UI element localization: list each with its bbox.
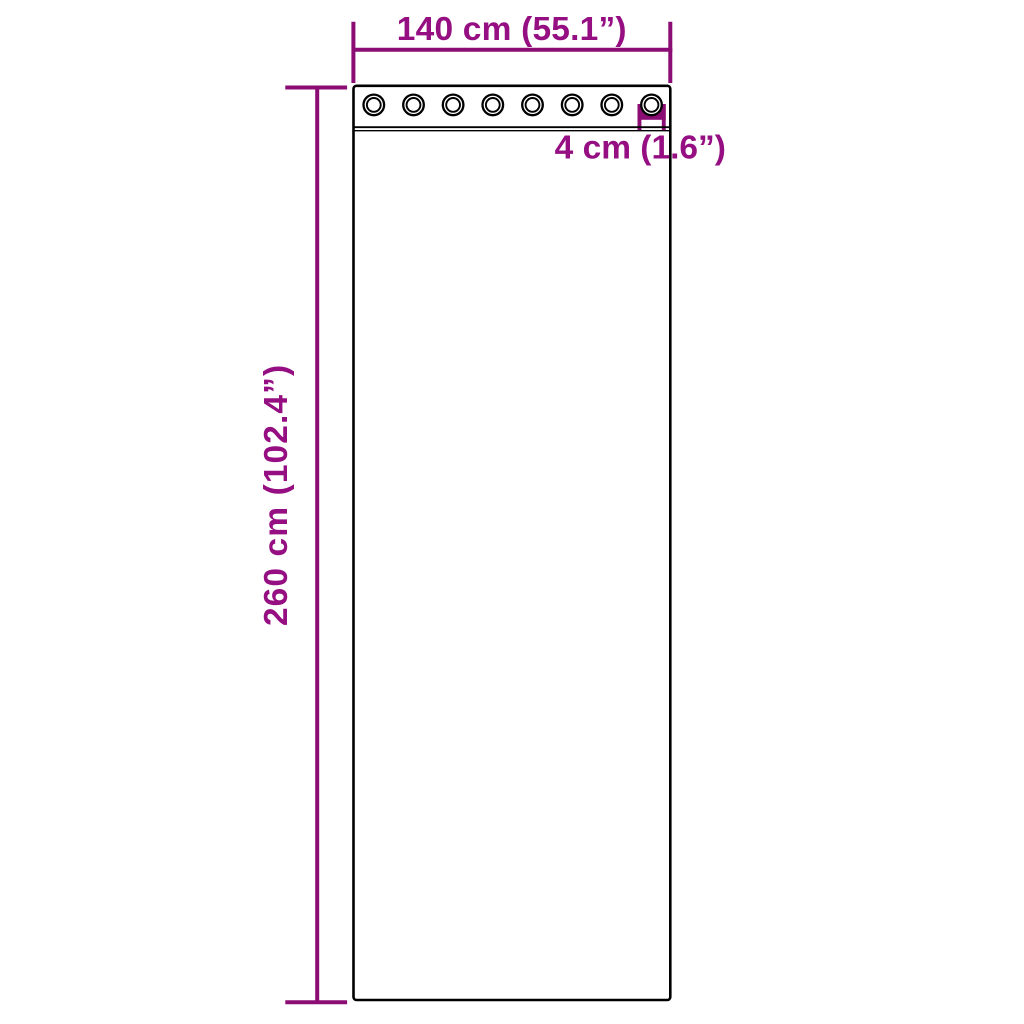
svg-text:140 cm (55.1”): 140 cm (55.1”)	[397, 11, 627, 48]
svg-text:4 cm (1.6”): 4 cm (1.6”)	[555, 130, 726, 167]
svg-text:260 cm (102.4”): 260 cm (102.4”)	[258, 364, 295, 626]
